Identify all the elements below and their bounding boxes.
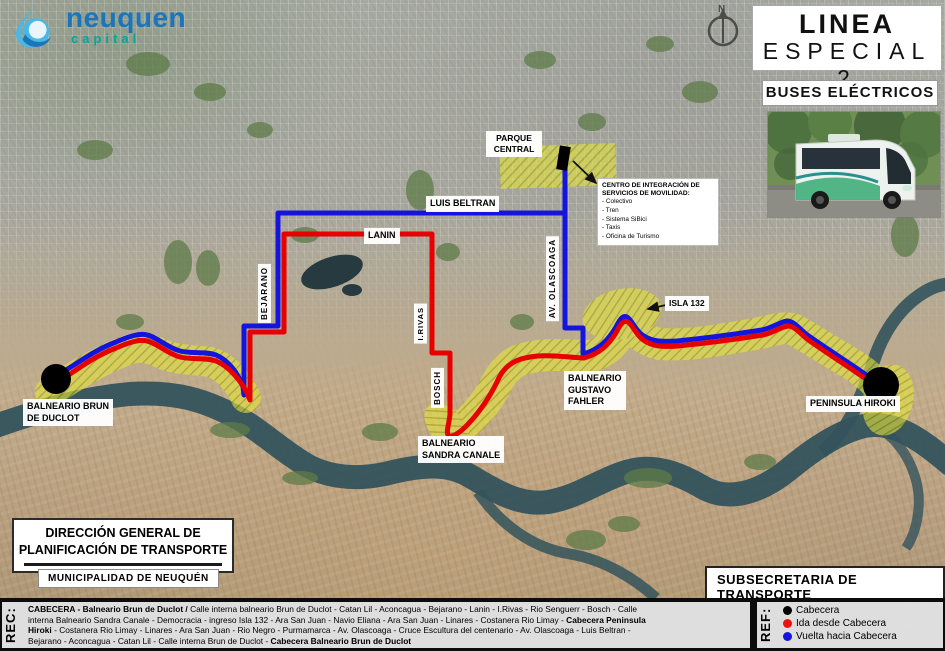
direccion-rule <box>24 563 222 566</box>
rec-line: Hiroki - Costanera Rio Limay - Linares -… <box>28 625 744 636</box>
north-compass-icon: N <box>709 4 737 45</box>
label-street-luis-beltran: LUIS BELTRAN <box>426 196 499 212</box>
direccion-general-box: DIRECCIÓN GENERAL DE PLANIFICACIÓN DE TR… <box>12 518 234 573</box>
rec-line: CABECERA - Balneario Brun de Duclot / Ca… <box>28 604 744 615</box>
legend-item: Cabecera <box>783 605 941 616</box>
label-balneario-brun-duclot: BALNEARIO BRUN DE DUCLOT <box>23 399 113 426</box>
legend-label: Ida desde Cabecera <box>796 618 886 629</box>
legend-item: Vuelta hacia Cabecera <box>783 631 941 642</box>
legend-dot <box>783 606 792 615</box>
title-box: LINEA ESPECIAL 2 <box>752 5 942 71</box>
centro-item: - Oficina de Turismo <box>602 233 714 242</box>
rec-label: REC: <box>2 602 24 648</box>
map-poster: N PARQUE CENTRAL LUIS BELTRAN LANIN BEJA… <box>0 0 945 651</box>
centro-item: - Colectivo <box>602 198 714 207</box>
legend-label: Cabecera <box>796 605 839 616</box>
legend-label: Vuelta hacia Cabecera <box>796 631 897 642</box>
label-balneario-fahler: BALNEARIO GUSTAVO FAHLER <box>564 371 626 410</box>
legend-dot <box>783 619 792 628</box>
legend-dot <box>783 632 792 641</box>
centro-items: - Colectivo- Tren- Sistema SiBici- Taxis… <box>602 198 714 241</box>
centro-integracion-box: CENTRO DE INTEGRACIÓN DE SERVICIOS DE MO… <box>597 178 719 246</box>
rec-line: interna Balneario Sandra Canale - Democr… <box>28 615 744 626</box>
neuquen-capital-logo: neuquen capital <box>8 4 186 52</box>
centro-item: - Sistema SiBici <box>602 216 714 225</box>
centro-integracion-title: CENTRO DE INTEGRACIÓN DE SERVICIOS DE MO… <box>602 182 714 198</box>
label-street-bejarano: BEJARANO <box>258 264 271 323</box>
subsecretaria-box: SUBSECRETARIA DE TRANSPORTE <box>705 566 945 598</box>
label-street-rivas: I.RIVAS <box>414 304 427 344</box>
label-street-bosch: BOSCH <box>431 368 444 408</box>
direccion-line1: DIRECCIÓN GENERAL DE <box>18 525 228 542</box>
ref-label: REF: <box>757 602 779 648</box>
ref-panel: REF: CabeceraIda desde CabeceraVuelta ha… <box>757 602 943 648</box>
label-balneario-sandra-canale: BALNEARIO SANDRA CANALE <box>418 436 504 463</box>
rec-line: Bejarano - Aconcagua - Catan Lil - Calle… <box>28 636 744 647</box>
logo-name: neuquen <box>66 4 186 32</box>
label-isla-132: ISLA 132 <box>665 296 709 311</box>
cabecera-dot-brun-duclot <box>41 364 71 394</box>
legend-item: Ida desde Cabecera <box>783 618 941 629</box>
label-peninsula-hiroki: PENINSULA HIROKI <box>806 396 900 412</box>
centro-item: - Taxis <box>602 224 714 233</box>
centro-item: - Tren <box>602 207 714 216</box>
park-pond-small <box>342 284 362 296</box>
page-title: LINEA <box>753 10 941 38</box>
rec-panel: REC: CABECERA - Balneario Brun de Duclot… <box>2 602 750 648</box>
label-street-olascoaga: AV. OLASCOAGA <box>546 236 559 321</box>
ref-legend: CabeceraIda desde CabeceraVuelta hacia C… <box>779 602 943 648</box>
logo-tagline: capital <box>71 31 186 46</box>
bottom-info-bar: REC: CABECERA - Balneario Brun de Duclot… <box>0 598 945 651</box>
municipalidad-box: MUNICIPALIDAD DE NEUQUÉN <box>38 569 219 588</box>
compass-n-label: N <box>718 4 725 15</box>
label-parque-central: PARQUE CENTRAL <box>486 131 542 157</box>
label-street-lanin: LANIN <box>364 228 400 244</box>
water-drop-icon <box>8 4 62 52</box>
direccion-line2: PLANIFICACIÓN DE TRANSPORTE <box>18 542 228 559</box>
rec-text: CABECERA - Balneario Brun de Duclot / Ca… <box>24 602 750 648</box>
electric-bus-photo <box>768 112 940 217</box>
subtitle-buses-electricos: BUSES ELÉCTRICOS <box>762 80 938 106</box>
